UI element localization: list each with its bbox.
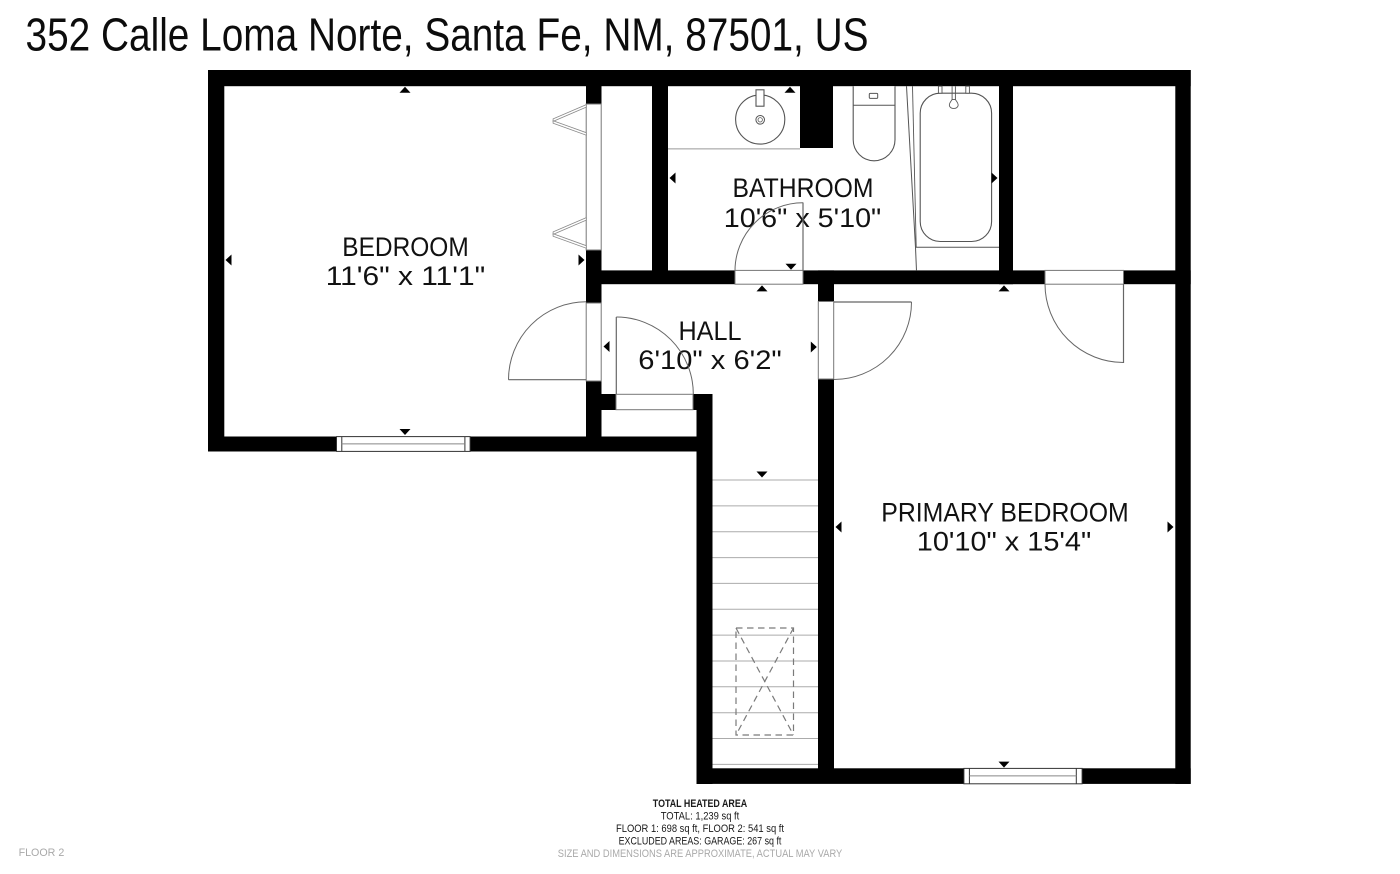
svg-text:TOTAL: 1,239 sq ft: TOTAL: 1,239 sq ft bbox=[661, 811, 740, 823]
svg-text:FLOOR 2: FLOOR 2 bbox=[19, 847, 65, 859]
svg-text:352 Calle Loma Norte, Santa Fe: 352 Calle Loma Norte, Santa Fe, NM, 8750… bbox=[26, 9, 869, 61]
svg-text:10'10" x 15'4": 10'10" x 15'4" bbox=[917, 526, 1092, 556]
svg-text:TOTAL HEATED AREA: TOTAL HEATED AREA bbox=[653, 798, 747, 810]
svg-text:BEDROOM: BEDROOM bbox=[342, 232, 469, 262]
svg-text:BATHROOM: BATHROOM bbox=[733, 173, 874, 203]
svg-text:FLOOR 1: 698 sq ft, FLOOR 2: 5: FLOOR 1: 698 sq ft, FLOOR 2: 541 sq ft bbox=[616, 823, 784, 835]
svg-text:SIZE AND DIMENSIONS ARE APPROX: SIZE AND DIMENSIONS ARE APPROXIMATE, ACT… bbox=[558, 848, 843, 860]
svg-text:HALL: HALL bbox=[679, 316, 742, 346]
svg-text:EXCLUDED AREAS: GARAGE: 267 sq: EXCLUDED AREAS: GARAGE: 267 sq ft bbox=[619, 836, 782, 848]
svg-text:PRIMARY BEDROOM: PRIMARY BEDROOM bbox=[881, 497, 1129, 527]
svg-text:11'6" x 11'1": 11'6" x 11'1" bbox=[326, 261, 486, 291]
svg-text:6'10" x 6'2": 6'10" x 6'2" bbox=[638, 345, 782, 375]
